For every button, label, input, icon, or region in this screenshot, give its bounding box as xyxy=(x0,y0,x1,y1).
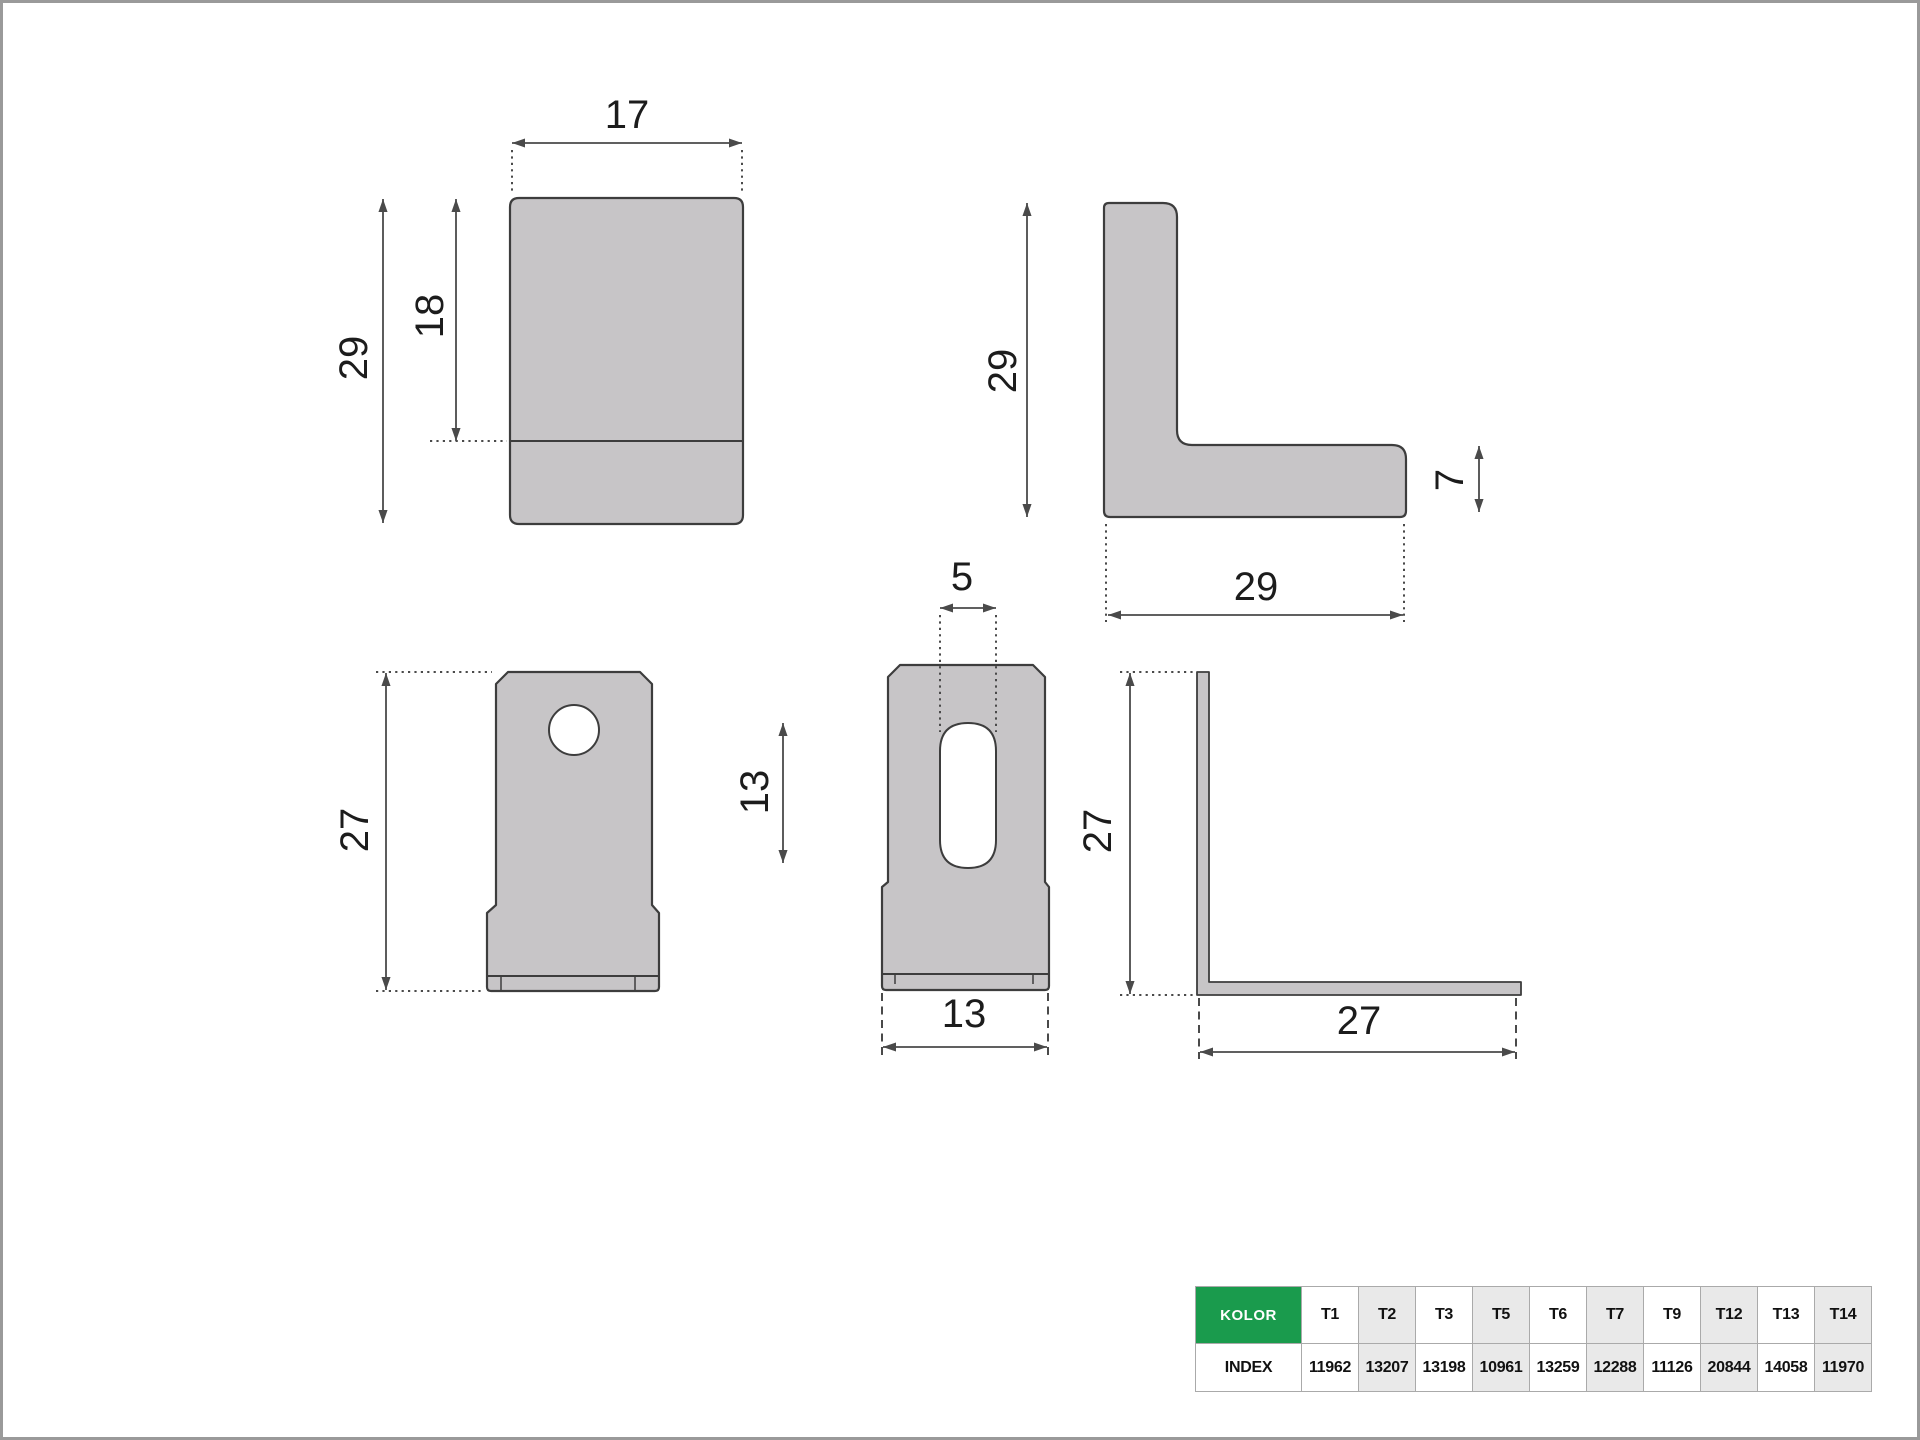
side-view-top: 29 29 7 xyxy=(981,203,1479,622)
slot-hole xyxy=(940,723,996,868)
dim-label-height-29: 29 xyxy=(981,349,1025,394)
dim-label-width-13: 13 xyxy=(942,992,987,1036)
index-value-cell: 13198 xyxy=(1416,1344,1473,1392)
front-view-top: 17 29 18 xyxy=(332,93,743,524)
dim-label-slot-width-5: 5 xyxy=(951,555,973,599)
tab-profile-shape xyxy=(1197,672,1521,995)
color-index-table: KOLOR T1 T2 T3 T5 T6 T7 T9 T12 T13 T14 I… xyxy=(1195,1286,1872,1392)
dim-label-height-27: 27 xyxy=(1076,809,1120,854)
index-value-cell: 10961 xyxy=(1473,1344,1530,1392)
color-code-cell: T5 xyxy=(1473,1287,1530,1344)
dim-label-width-17: 17 xyxy=(605,93,650,137)
color-code-cell: T7 xyxy=(1587,1287,1644,1344)
color-code-cell: T12 xyxy=(1701,1287,1758,1344)
tab-front-view: 27 xyxy=(333,672,659,991)
index-value-cell: 11962 xyxy=(1302,1344,1359,1392)
tab-slot-front-view: 5 13 13 xyxy=(733,555,1049,1056)
color-code-cell: T13 xyxy=(1758,1287,1815,1344)
kolor-header-cell: KOLOR xyxy=(1196,1287,1302,1344)
index-value-cell: 12288 xyxy=(1587,1344,1644,1392)
table-row-index: INDEX 11962 13207 13198 10961 13259 1228… xyxy=(1196,1344,1872,1392)
dim-label-thickness-7: 7 xyxy=(1428,469,1472,491)
round-hole xyxy=(549,705,599,755)
color-code-cell: T2 xyxy=(1359,1287,1416,1344)
color-code-cell: T1 xyxy=(1302,1287,1359,1344)
color-code-cell: T9 xyxy=(1644,1287,1701,1344)
index-value-cell: 11970 xyxy=(1815,1344,1872,1392)
tab-side-view: 27 27 xyxy=(1076,672,1521,1059)
dim-label-upper-18: 18 xyxy=(408,294,452,339)
color-code-cell: T3 xyxy=(1416,1287,1473,1344)
bracket-drawing: 17 29 18 29 29 7 xyxy=(3,3,1917,1437)
dim-label-slot-length-13: 13 xyxy=(733,770,777,815)
index-value-cell: 13207 xyxy=(1359,1344,1416,1392)
bracket-profile-shape xyxy=(1104,203,1406,517)
dim-label-width-27: 27 xyxy=(1337,999,1382,1043)
index-value-cell: 14058 xyxy=(1758,1344,1815,1392)
index-value-cell: 11126 xyxy=(1644,1344,1701,1392)
color-code-cell: T14 xyxy=(1815,1287,1872,1344)
dim-label-width-29: 29 xyxy=(1234,565,1279,609)
bracket-face-shape xyxy=(510,198,743,524)
dim-label-height-27: 27 xyxy=(333,808,377,853)
color-code-cell: T6 xyxy=(1530,1287,1587,1344)
index-header-cell: INDEX xyxy=(1196,1344,1302,1392)
index-value-cell: 13259 xyxy=(1530,1344,1587,1392)
table-row-kolor: KOLOR T1 T2 T3 T5 T6 T7 T9 T12 T13 T14 xyxy=(1196,1287,1872,1344)
dim-label-height-29: 29 xyxy=(332,336,376,381)
index-value-cell: 20844 xyxy=(1701,1344,1758,1392)
technical-drawing-sheet: 17 29 18 29 29 7 xyxy=(0,0,1920,1440)
